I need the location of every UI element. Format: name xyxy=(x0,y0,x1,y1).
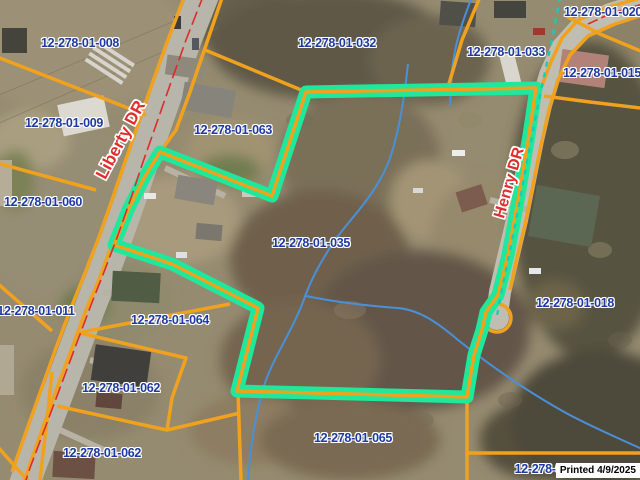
parcel-label: 12-278-01-009 xyxy=(25,116,103,130)
parcel-label: 12-278-01-064 xyxy=(131,313,209,327)
parcel-label-selected: 12-278-01-035 xyxy=(272,236,350,250)
parcel-label: 12-278-01-015 xyxy=(563,66,640,80)
parcel-label: 12-278-01-008 xyxy=(41,36,119,50)
parcel-label: 12-278-01-032 xyxy=(298,36,376,50)
map-canvas[interactable]: 12-278-01-008 12-278-01-032 12-278-01-02… xyxy=(0,0,640,480)
parcel-label: 12-278-01-062 xyxy=(63,446,141,460)
parcel-label: 12-278-01-063 xyxy=(194,123,272,137)
printed-date-stamp: Printed 4/9/2025 xyxy=(556,463,640,478)
parcel-label: 12-278-01-011 xyxy=(0,304,75,318)
parcel-label: 12-278-01-065 xyxy=(314,431,392,445)
parcel-label: 12-278-01-033 xyxy=(467,45,545,59)
concrete-pad xyxy=(0,345,14,395)
parcel-label: 12-278-01-018 xyxy=(536,296,614,310)
parcel-label: 12-278-01-062 xyxy=(82,381,160,395)
parcel-label: 12-278-01-020 xyxy=(564,5,640,19)
parcel-label: 12-278-01-060 xyxy=(4,195,82,209)
